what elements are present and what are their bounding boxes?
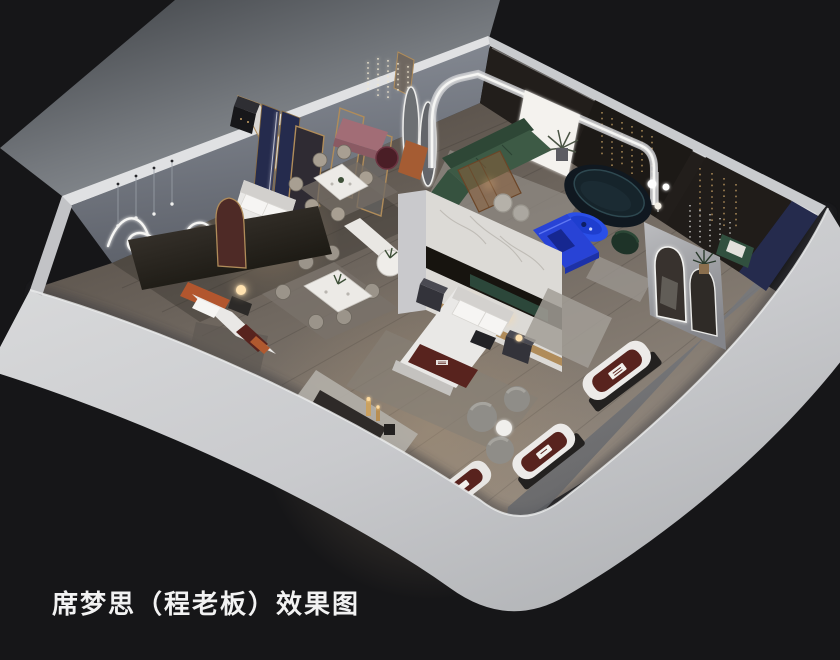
black-side-cube: [384, 424, 395, 435]
knit-pouf: [494, 194, 512, 212]
showroom-render: 席梦思（程老板）效果图: [0, 0, 840, 660]
wine-round-table: [376, 147, 398, 169]
round-side-table: [496, 420, 512, 436]
caption-text: 席梦思（程老板）效果图: [52, 589, 360, 619]
table-plant: [338, 177, 344, 183]
runner-logo: [436, 360, 448, 365]
render-canvas: 席梦思（程老板）效果图: [0, 0, 840, 660]
knit-pouf: [513, 205, 529, 221]
arch-mirror-small: [216, 198, 246, 268]
arch-mirror-2: [690, 269, 717, 336]
